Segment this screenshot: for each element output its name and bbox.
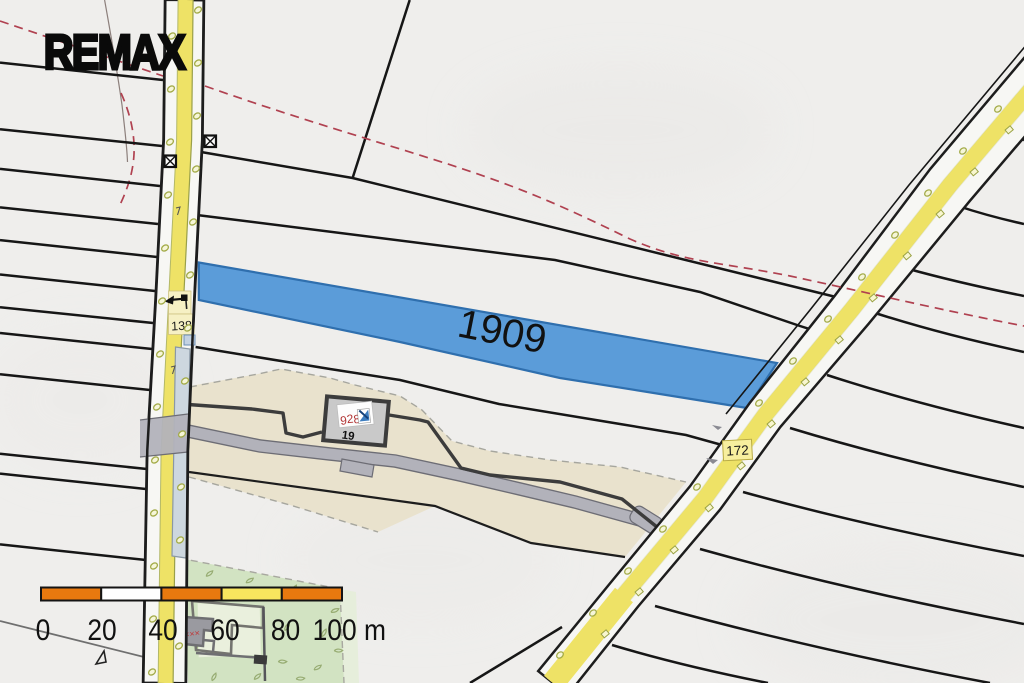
svg-text:0: 0 — [36, 612, 51, 646]
svg-text:172: 172 — [726, 442, 749, 458]
svg-text:20: 20 — [87, 612, 116, 646]
svg-text:80: 80 — [271, 612, 300, 646]
svg-text:60: 60 — [210, 612, 239, 646]
svg-text:100 m: 100 m — [313, 612, 386, 646]
svg-text:19: 19 — [341, 429, 355, 443]
svg-text:REMAX: REMAX — [44, 25, 186, 80]
svg-text:40: 40 — [148, 612, 177, 646]
